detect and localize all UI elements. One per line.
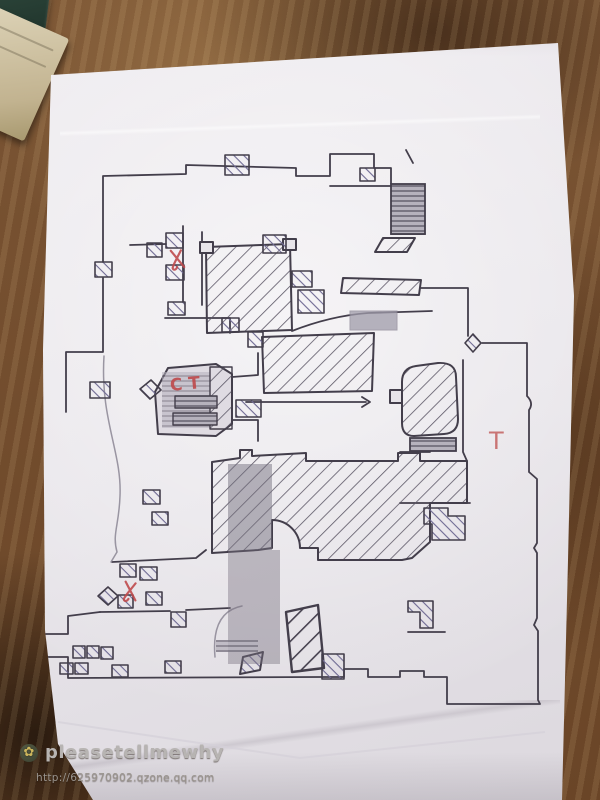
dense-box xyxy=(410,438,456,451)
shaded-box xyxy=(350,311,397,330)
hatched-box xyxy=(146,592,162,605)
map-walls xyxy=(26,150,540,704)
hatched-box xyxy=(152,512,168,525)
corner-knob xyxy=(200,242,213,253)
hatched-area-bold xyxy=(286,605,324,672)
hatched-box xyxy=(360,168,375,181)
hatched-bar xyxy=(375,238,415,252)
photo-of-hand-drawn-map: CT T ✿ pleasetellmewhy http://625970902.… xyxy=(0,0,600,800)
hatched-box xyxy=(322,654,344,679)
map-drawing: CT T xyxy=(0,0,600,800)
dense-box xyxy=(391,184,425,234)
hatched-box xyxy=(248,332,263,347)
hatched-box xyxy=(168,302,185,315)
watermark-name: pleasetellmewhy xyxy=(45,742,224,763)
ct-block-rows xyxy=(173,413,217,425)
hatched-box xyxy=(236,400,261,417)
shaded-bar xyxy=(216,640,258,652)
hatched-box xyxy=(95,262,112,277)
hatched-box xyxy=(87,646,99,658)
side-knob xyxy=(390,390,402,403)
hatched-box xyxy=(225,155,249,175)
hatched-box xyxy=(263,235,286,253)
hatched-box xyxy=(112,665,128,677)
ct-label: CT xyxy=(169,373,207,396)
hatched-step-box xyxy=(408,601,433,628)
hatched-area-rounded xyxy=(402,363,458,436)
hatched-box xyxy=(298,290,324,313)
hatched-area xyxy=(262,333,374,393)
hatched-bar xyxy=(341,278,421,295)
hatched-diamond xyxy=(465,334,481,352)
hatched-box xyxy=(147,243,162,257)
hatched-box xyxy=(292,271,312,287)
hatched-box xyxy=(166,265,184,280)
hatched-box xyxy=(90,382,110,398)
ct-block-rows xyxy=(175,396,217,408)
qzone-flower-icon: ✿ xyxy=(20,744,38,762)
hatched-box xyxy=(165,661,181,673)
shaded-column xyxy=(228,464,272,550)
hatched-diamond xyxy=(98,587,118,605)
hatched-box xyxy=(166,233,183,248)
paper-sheet: CT T xyxy=(0,0,600,800)
watermark-url: http://625970902.qzone.qq.com xyxy=(36,772,214,784)
hatched-box xyxy=(101,647,113,659)
hatched-box xyxy=(143,490,160,504)
hatched-box xyxy=(75,663,88,674)
hatched-box xyxy=(120,564,136,577)
hatched-area xyxy=(206,244,292,333)
t-label: T xyxy=(488,427,504,455)
watermark: ✿ pleasetellmewhy xyxy=(20,742,224,763)
hatched-box xyxy=(60,663,73,674)
hatched-box xyxy=(171,612,186,627)
hatched-box xyxy=(73,646,85,658)
hatched-box xyxy=(140,567,157,580)
hatched-box xyxy=(222,318,239,332)
